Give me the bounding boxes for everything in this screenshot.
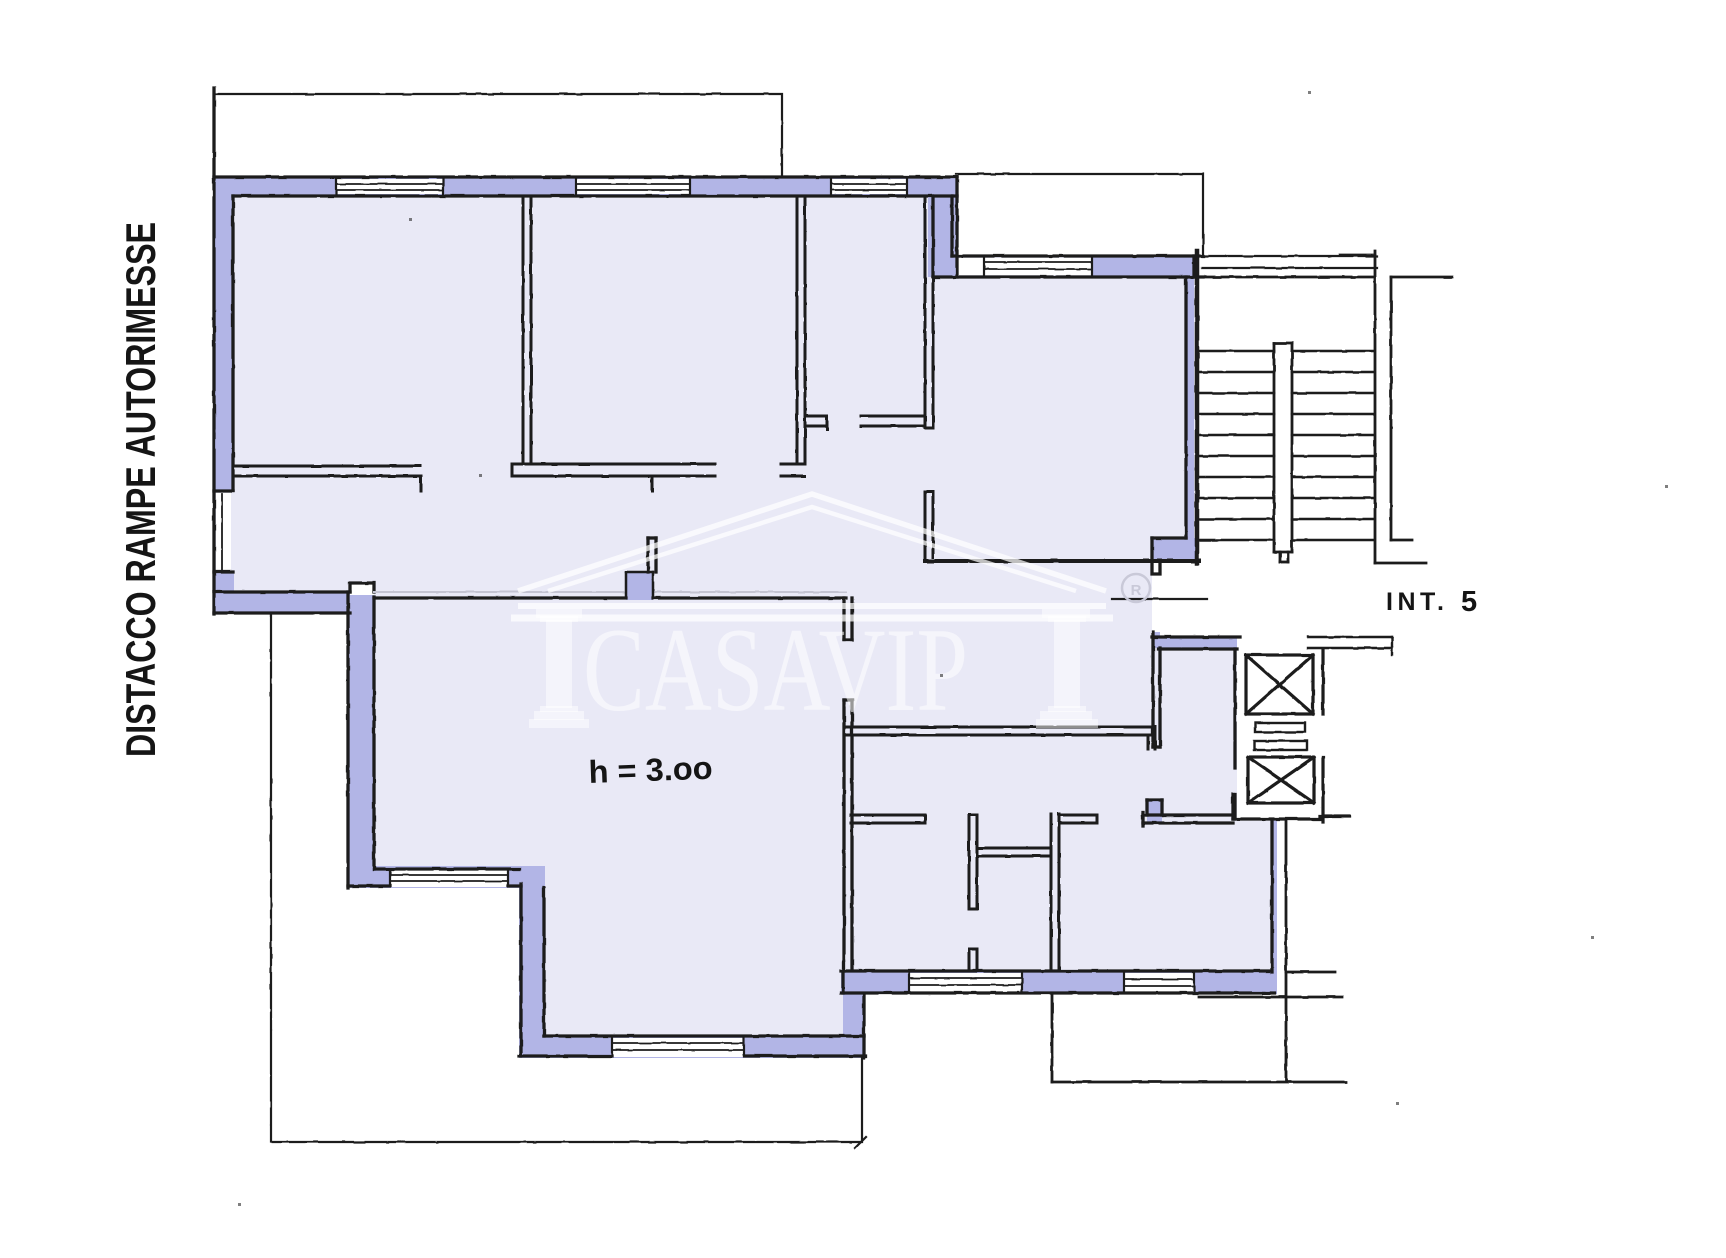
- svg-text:CASAVIP: CASAVIP: [583, 603, 968, 736]
- svg-text:INT.: INT.: [1386, 588, 1448, 616]
- svg-text:h = 3.oo: h = 3.oo: [588, 750, 713, 790]
- svg-text:DISTACCO RAMPE AUTORIMESSE: DISTACCO RAMPE AUTORIMESSE: [117, 222, 164, 757]
- svg-text:5: 5: [1461, 586, 1477, 618]
- svg-text:R: R: [1131, 582, 1142, 599]
